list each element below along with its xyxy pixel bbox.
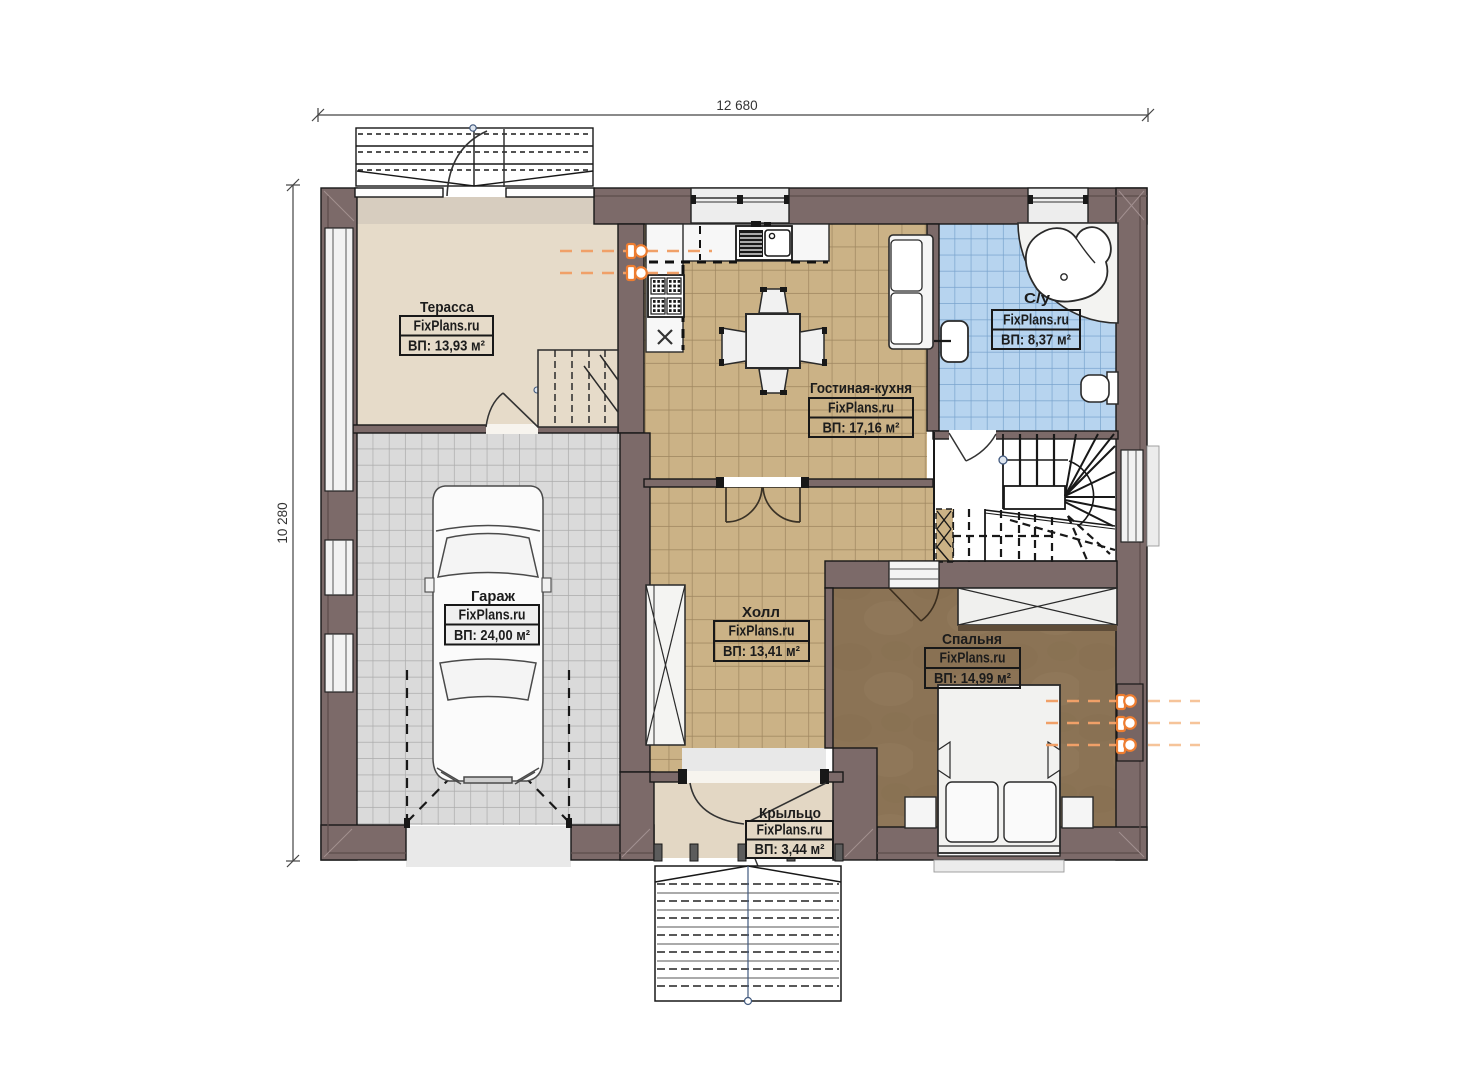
svg-text:Гараж: Гараж [471,588,515,605]
svg-text:ВП: 13,41 м²: ВП: 13,41 м² [723,644,800,660]
svg-text:Терасса: Терасса [420,299,475,316]
svg-text:ВП: 24,00 м²: ВП: 24,00 м² [454,628,530,644]
svg-text:FixPlans.ru: FixPlans.ru [940,651,1006,667]
svg-text:FixPlans.ru: FixPlans.ru [414,319,480,335]
svg-text:Холл: Холл [742,604,780,621]
svg-text:ВП: 14,99 м²: ВП: 14,99 м² [934,671,1011,687]
svg-text:FixPlans.ru: FixPlans.ru [828,401,894,417]
svg-text:С/у: С/у [1024,290,1051,307]
svg-text:ВП: 13,93 м²: ВП: 13,93 м² [408,339,485,355]
svg-text:ВП: 3,44 м²: ВП: 3,44 м² [755,842,825,858]
svg-text:Гостиная-кухня: Гостиная-кухня [810,380,912,397]
svg-text:FixPlans.ru: FixPlans.ru [459,608,526,624]
svg-text:12 680: 12 680 [716,98,757,113]
svg-text:FixPlans.ru: FixPlans.ru [729,624,795,640]
svg-text:10 280: 10 280 [275,502,290,543]
svg-text:Спальня: Спальня [942,631,1002,648]
svg-text:FixPlans.ru: FixPlans.ru [757,823,823,839]
svg-text:FixPlans.ru: FixPlans.ru [1003,313,1069,329]
svg-text:ВП: 8,37 м²: ВП: 8,37 м² [1001,333,1071,349]
svg-text:ВП: 17,16 м²: ВП: 17,16 м² [823,421,900,437]
svg-text:Крыльцо: Крыльцо [759,805,821,822]
